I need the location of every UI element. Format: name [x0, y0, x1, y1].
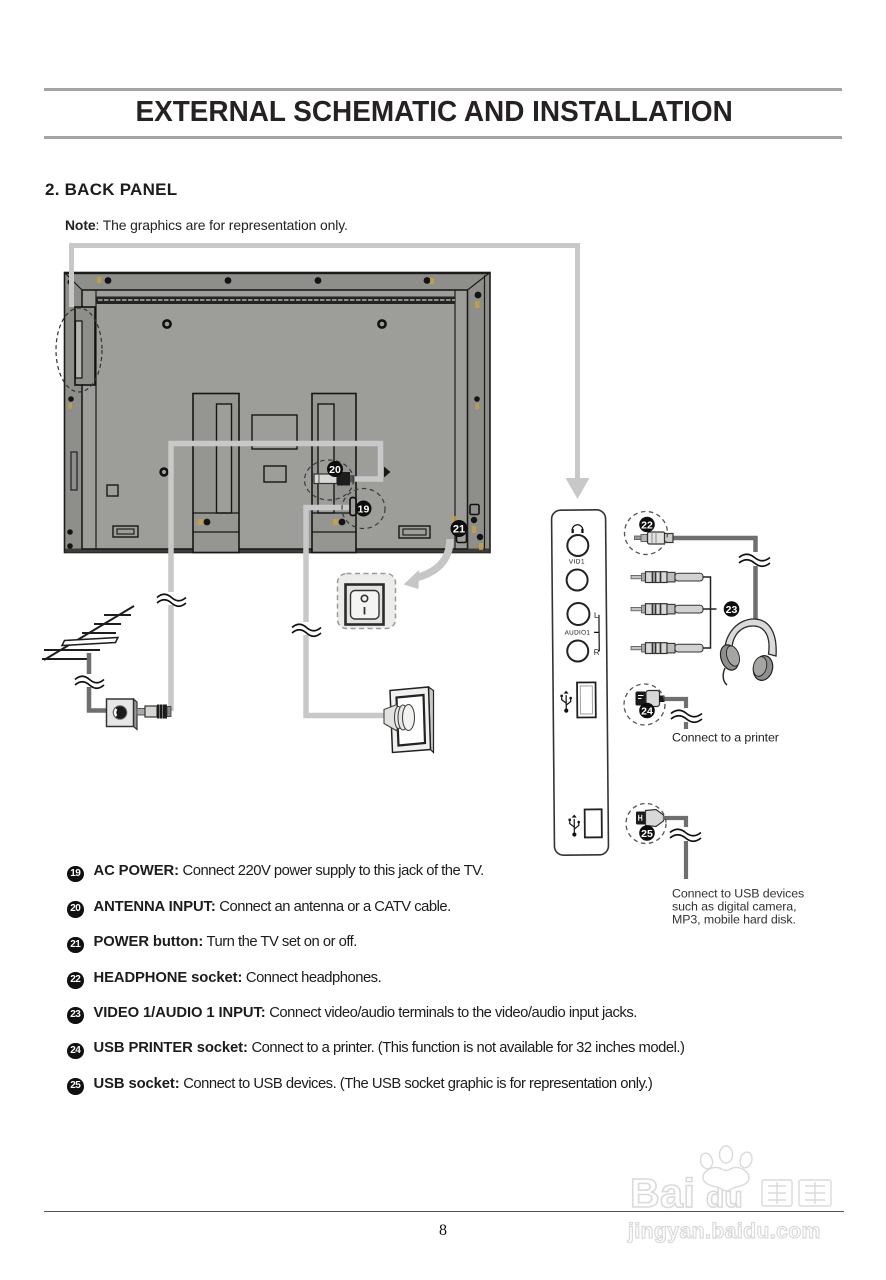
svg-text:21: 21 [453, 523, 465, 535]
svg-text:Connect to a printer: Connect to a printer [672, 731, 779, 745]
svg-text:VID1: VID1 [569, 558, 585, 565]
svg-text:Bai: Bai [630, 1170, 695, 1216]
svg-text:25: 25 [641, 828, 653, 840]
svg-text:L: L [594, 611, 599, 620]
svg-text:such as digital camera,: such as digital camera, [672, 900, 796, 914]
svg-text:19: 19 [358, 503, 370, 515]
svg-text:AUDIO1: AUDIO1 [565, 629, 591, 636]
svg-text:MP3, mobile hard disk.: MP3, mobile hard disk. [672, 913, 796, 927]
svg-text:22: 22 [641, 519, 653, 531]
svg-text:R: R [594, 648, 600, 657]
svg-text:20: 20 [329, 464, 341, 476]
svg-text:23: 23 [726, 604, 738, 616]
svg-text:jingyan.baidu.com: jingyan.baidu.com [627, 1220, 821, 1243]
svg-text:24: 24 [641, 705, 653, 717]
svg-text:Connect to USB devices: Connect to USB devices [672, 887, 804, 901]
